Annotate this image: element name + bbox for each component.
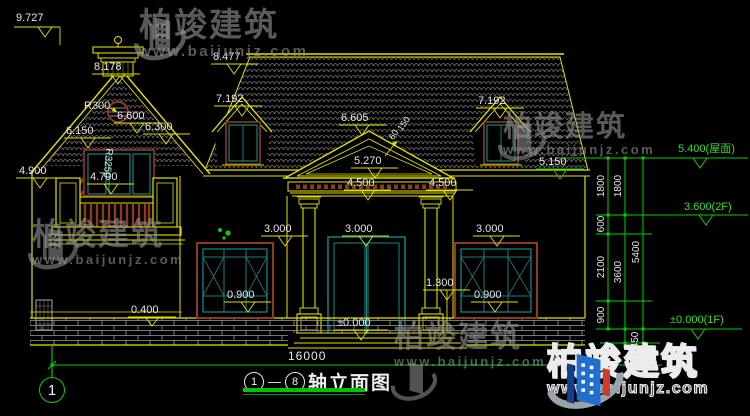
entry-steps xyxy=(288,333,467,348)
dim-gable-right: 6.300 xyxy=(145,122,173,133)
level-1f: ±0.000(1F) xyxy=(670,315,724,326)
porch-column-left xyxy=(297,197,321,333)
overall-dimension: 16000 xyxy=(288,351,326,362)
dim-win-top-right: 3.000 xyxy=(476,224,504,235)
dim-1800-a: 1800 xyxy=(597,175,607,197)
dim-porch-left: 4.500 xyxy=(347,178,375,189)
dim-column-base: 1.300 xyxy=(426,278,454,289)
dim-porch-ridge: 6.605 xyxy=(341,113,369,124)
title-underline xyxy=(243,388,365,392)
dim-left-ridge: 8.178 xyxy=(94,62,122,73)
dim-win-top-left: 3.000 xyxy=(264,224,292,235)
dim-chimney-top: 9.727 xyxy=(16,13,44,24)
axis-bubble-label: 1 xyxy=(48,382,56,399)
cad-elevation-screenshot: 9.727 8.178 8.477 7.192 7.192 6.605 R300… xyxy=(0,0,750,416)
dim-left-eave: 4.900 xyxy=(19,166,47,177)
dim-gable-left: 6.150 xyxy=(66,126,94,137)
dim-1800-b: 1800 xyxy=(614,175,624,197)
title-underline-thin xyxy=(243,394,365,395)
dim-vent-radius: R300 xyxy=(84,101,110,112)
dim-ground-floor: ±0.000 xyxy=(337,318,371,329)
dim-600: 600 xyxy=(597,216,607,233)
window-left xyxy=(197,243,273,318)
dim-gable-center: 6.600 xyxy=(117,111,145,122)
dim-450: 450 xyxy=(631,332,641,349)
dim-2100: 2100 xyxy=(597,256,607,278)
dim-sill-right: 0.900 xyxy=(474,290,502,301)
level-roof: 5.400(屋面) xyxy=(678,144,735,155)
dim-sill-left: 0.900 xyxy=(227,290,255,301)
dim-win-top-center: 3.000 xyxy=(345,224,373,235)
dim-balcony-top: 4.700 xyxy=(90,172,118,183)
porch-column-right xyxy=(419,197,443,333)
dim-900: 900 xyxy=(597,307,607,324)
dim-right-eave: 5.150 xyxy=(539,157,567,168)
window-right xyxy=(455,243,537,318)
dim-plinth: 0.400 xyxy=(131,305,159,316)
dim-dormer-left: 7.192 xyxy=(216,94,244,105)
planting-symbol xyxy=(218,228,231,240)
dim-pediment: 5.270 xyxy=(354,156,382,167)
left-gable-wing xyxy=(30,68,210,330)
dim-5400: 5400 xyxy=(632,241,642,263)
dim-porch-right: 4.500 xyxy=(429,178,457,189)
axis-bubble-1: 1 xyxy=(39,377,65,403)
dim-3600: 3600 xyxy=(614,261,624,283)
dim-main-ridge: 8.477 xyxy=(213,52,241,63)
axis-range-dash: — xyxy=(268,374,281,389)
dim-dormer-right: 7.192 xyxy=(478,96,506,107)
level-2f: 3.600(2F) xyxy=(684,202,732,213)
